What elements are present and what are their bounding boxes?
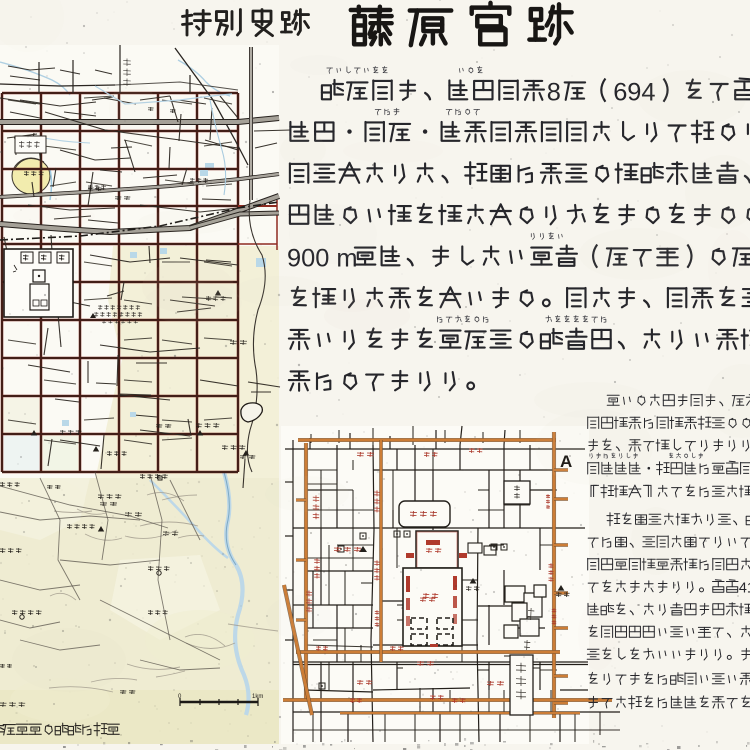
svg-text:8: 8 xyxy=(547,78,561,106)
svg-text:41: 41 xyxy=(739,581,750,597)
svg-text:1km: 1km xyxy=(252,694,263,700)
